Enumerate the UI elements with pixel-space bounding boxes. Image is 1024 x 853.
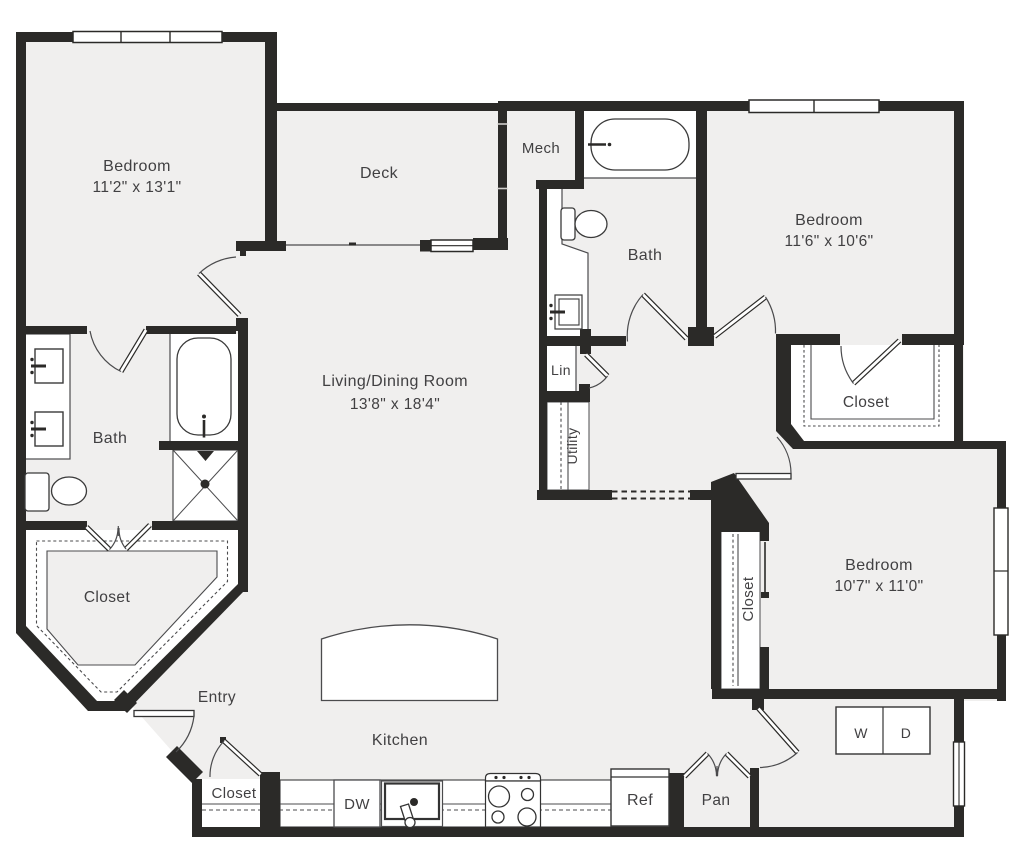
svg-text:Ref: Ref (627, 792, 653, 809)
svg-text:Bath: Bath (93, 430, 128, 447)
svg-text:Mech: Mech (522, 140, 560, 157)
svg-text:Living/Dining Room: Living/Dining Room (322, 373, 468, 390)
svg-text:DW: DW (344, 796, 370, 813)
svg-text:Kitchen: Kitchen (372, 732, 428, 749)
svg-text:11'2" x 13'1": 11'2" x 13'1" (92, 179, 181, 196)
svg-text:Closet: Closet (843, 394, 890, 411)
svg-text:Lin: Lin (551, 362, 571, 378)
svg-text:D: D (901, 725, 912, 741)
svg-text:13'8" x 18'4": 13'8" x 18'4" (350, 396, 440, 413)
svg-text:Closet: Closet (740, 576, 757, 621)
svg-text:11'6" x 10'6": 11'6" x 10'6" (784, 233, 873, 250)
svg-text:Bedroom: Bedroom (103, 158, 171, 175)
svg-text:Deck: Deck (360, 165, 399, 182)
svg-text:Closet: Closet (212, 785, 257, 802)
svg-text:Bath: Bath (628, 247, 663, 264)
svg-text:Closet: Closet (84, 589, 131, 606)
svg-text:Bedroom: Bedroom (845, 557, 913, 574)
svg-text:Entry: Entry (198, 689, 236, 706)
svg-text:10'7" x 11'0": 10'7" x 11'0" (834, 578, 923, 595)
svg-text:Bedroom: Bedroom (795, 212, 863, 229)
svg-text:W: W (854, 725, 868, 741)
svg-text:Pan: Pan (702, 792, 731, 809)
svg-text:Utility: Utility (564, 427, 580, 464)
